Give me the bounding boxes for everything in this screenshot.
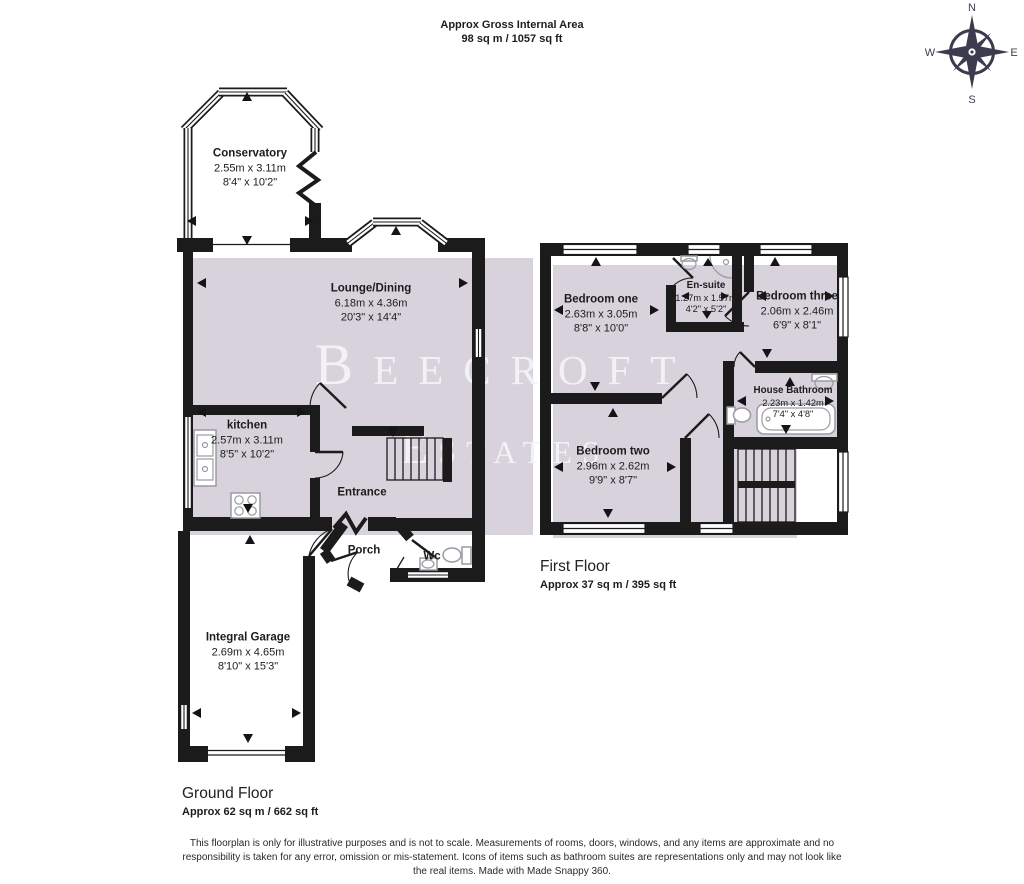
watermark-line1: Beecroft bbox=[315, 332, 696, 397]
compass-north-label: N bbox=[968, 2, 976, 14]
room-dim-metric: 2.63m x 3.05m bbox=[564, 307, 638, 321]
room-dim-imperial: 8'8" x 10'0" bbox=[564, 321, 638, 335]
room-label-house-bathroom: House Bathroom 2.23m x 1.42m 7'4" x 4'8" bbox=[754, 385, 833, 421]
room-dim-imperial: 8'5" x 10'2" bbox=[211, 447, 283, 461]
gross-internal-area-header: Approx Gross Internal Area 98 sq m / 105… bbox=[0, 18, 1024, 47]
room-dim-metric: 2.06m x 2.46m bbox=[756, 304, 838, 318]
floorplan-page: Beecroft Estates bbox=[0, 0, 1024, 884]
first-floor-title: First Floor Approx 37 sq m / 395 sq ft bbox=[540, 556, 676, 593]
room-dim-imperial: 7'4" x 4'8" bbox=[754, 409, 833, 421]
room-name: Conservatory bbox=[213, 147, 287, 162]
room-label-bedroom-one: Bedroom one 2.63m x 3.05m 8'8" x 10'0" bbox=[564, 293, 638, 336]
room-label-bedroom-three: Bedroom three 2.06m x 2.46m 6'9" x 8'1" bbox=[756, 290, 838, 333]
room-name: Bedroom one bbox=[564, 293, 638, 308]
room-dim-metric: 6.18m x 4.36m bbox=[331, 296, 411, 310]
ground-floor-title: Ground Floor Approx 62 sq m / 662 sq ft bbox=[182, 783, 318, 820]
disclaimer-text: This floorplan is only for illustrative … bbox=[182, 837, 842, 878]
room-dim-metric: 2.69m x 4.65m bbox=[206, 645, 290, 659]
room-dim-imperial: 4'2" x 5'2" bbox=[675, 304, 737, 316]
room-label-en-suite: En-suite 1.27m x 1.57m 4'2" x 5'2" bbox=[675, 280, 737, 316]
room-label-entrance: Entrance bbox=[337, 486, 386, 501]
room-name: Wc bbox=[423, 550, 440, 565]
room-dim-imperial: 20'3" x 14'4" bbox=[331, 310, 411, 324]
floor-name: Ground Floor bbox=[182, 783, 318, 805]
room-name: House Bathroom bbox=[754, 385, 833, 398]
room-dim-metric: 1.27m x 1.57m bbox=[675, 292, 737, 304]
room-name: Integral Garage bbox=[206, 631, 290, 646]
compass-south-label: S bbox=[968, 94, 975, 106]
room-name: kitchen bbox=[211, 419, 283, 434]
room-label-integral-garage: Integral Garage 2.69m x 4.65m 8'10" x 15… bbox=[206, 631, 290, 674]
compass-west-label: W bbox=[925, 47, 936, 59]
room-dim-metric: 2.96m x 2.62m bbox=[576, 459, 649, 473]
room-label-kitchen: kitchen 2.57m x 3.11m 8'5" x 10'2" bbox=[211, 419, 283, 462]
room-name: Porch bbox=[348, 544, 381, 559]
room-label-conservatory: Conservatory 2.55m x 3.11m 8'4" x 10'2" bbox=[213, 147, 287, 190]
header-title: Approx Gross Internal Area bbox=[0, 18, 1024, 32]
header-area: 98 sq m / 1057 sq ft bbox=[0, 32, 1024, 46]
floor-area: Approx 37 sq m / 395 sq ft bbox=[540, 578, 676, 593]
floor-area: Approx 62 sq m / 662 sq ft bbox=[182, 805, 318, 820]
room-dim-imperial: 6'9" x 8'1" bbox=[756, 318, 838, 332]
compass-east-label: E bbox=[1010, 47, 1017, 59]
room-name: En-suite bbox=[675, 280, 737, 293]
room-name: Entrance bbox=[337, 486, 386, 501]
room-label-porch: Porch bbox=[348, 544, 381, 559]
room-name: Lounge/Dining bbox=[331, 282, 411, 297]
room-dim-metric: 2.55m x 3.11m bbox=[213, 161, 287, 175]
room-label-lounge-dining: Lounge/Dining 6.18m x 4.36m 20'3" x 14'4… bbox=[331, 282, 411, 325]
room-dim-metric: 2.23m x 1.42m bbox=[754, 397, 833, 409]
room-dim-imperial: 9'9" x 8'7" bbox=[576, 473, 649, 487]
highlight-plates bbox=[183, 258, 848, 538]
room-label-bedroom-two: Bedroom two 2.96m x 2.62m 9'9" x 8'7" bbox=[576, 445, 649, 488]
floor-name: First Floor bbox=[540, 556, 676, 578]
room-dim-imperial: 8'4" x 10'2" bbox=[213, 175, 287, 189]
floorplan-drawing: Beecroft Estates bbox=[0, 0, 1024, 884]
room-dim-imperial: 8'10" x 15'3" bbox=[206, 659, 290, 673]
room-name: Bedroom two bbox=[576, 445, 649, 460]
room-dim-metric: 2.57m x 3.11m bbox=[211, 433, 283, 447]
wc-toilet-icon bbox=[462, 547, 471, 564]
room-name: Bedroom three bbox=[756, 290, 838, 305]
room-label-wc: Wc bbox=[423, 550, 440, 565]
